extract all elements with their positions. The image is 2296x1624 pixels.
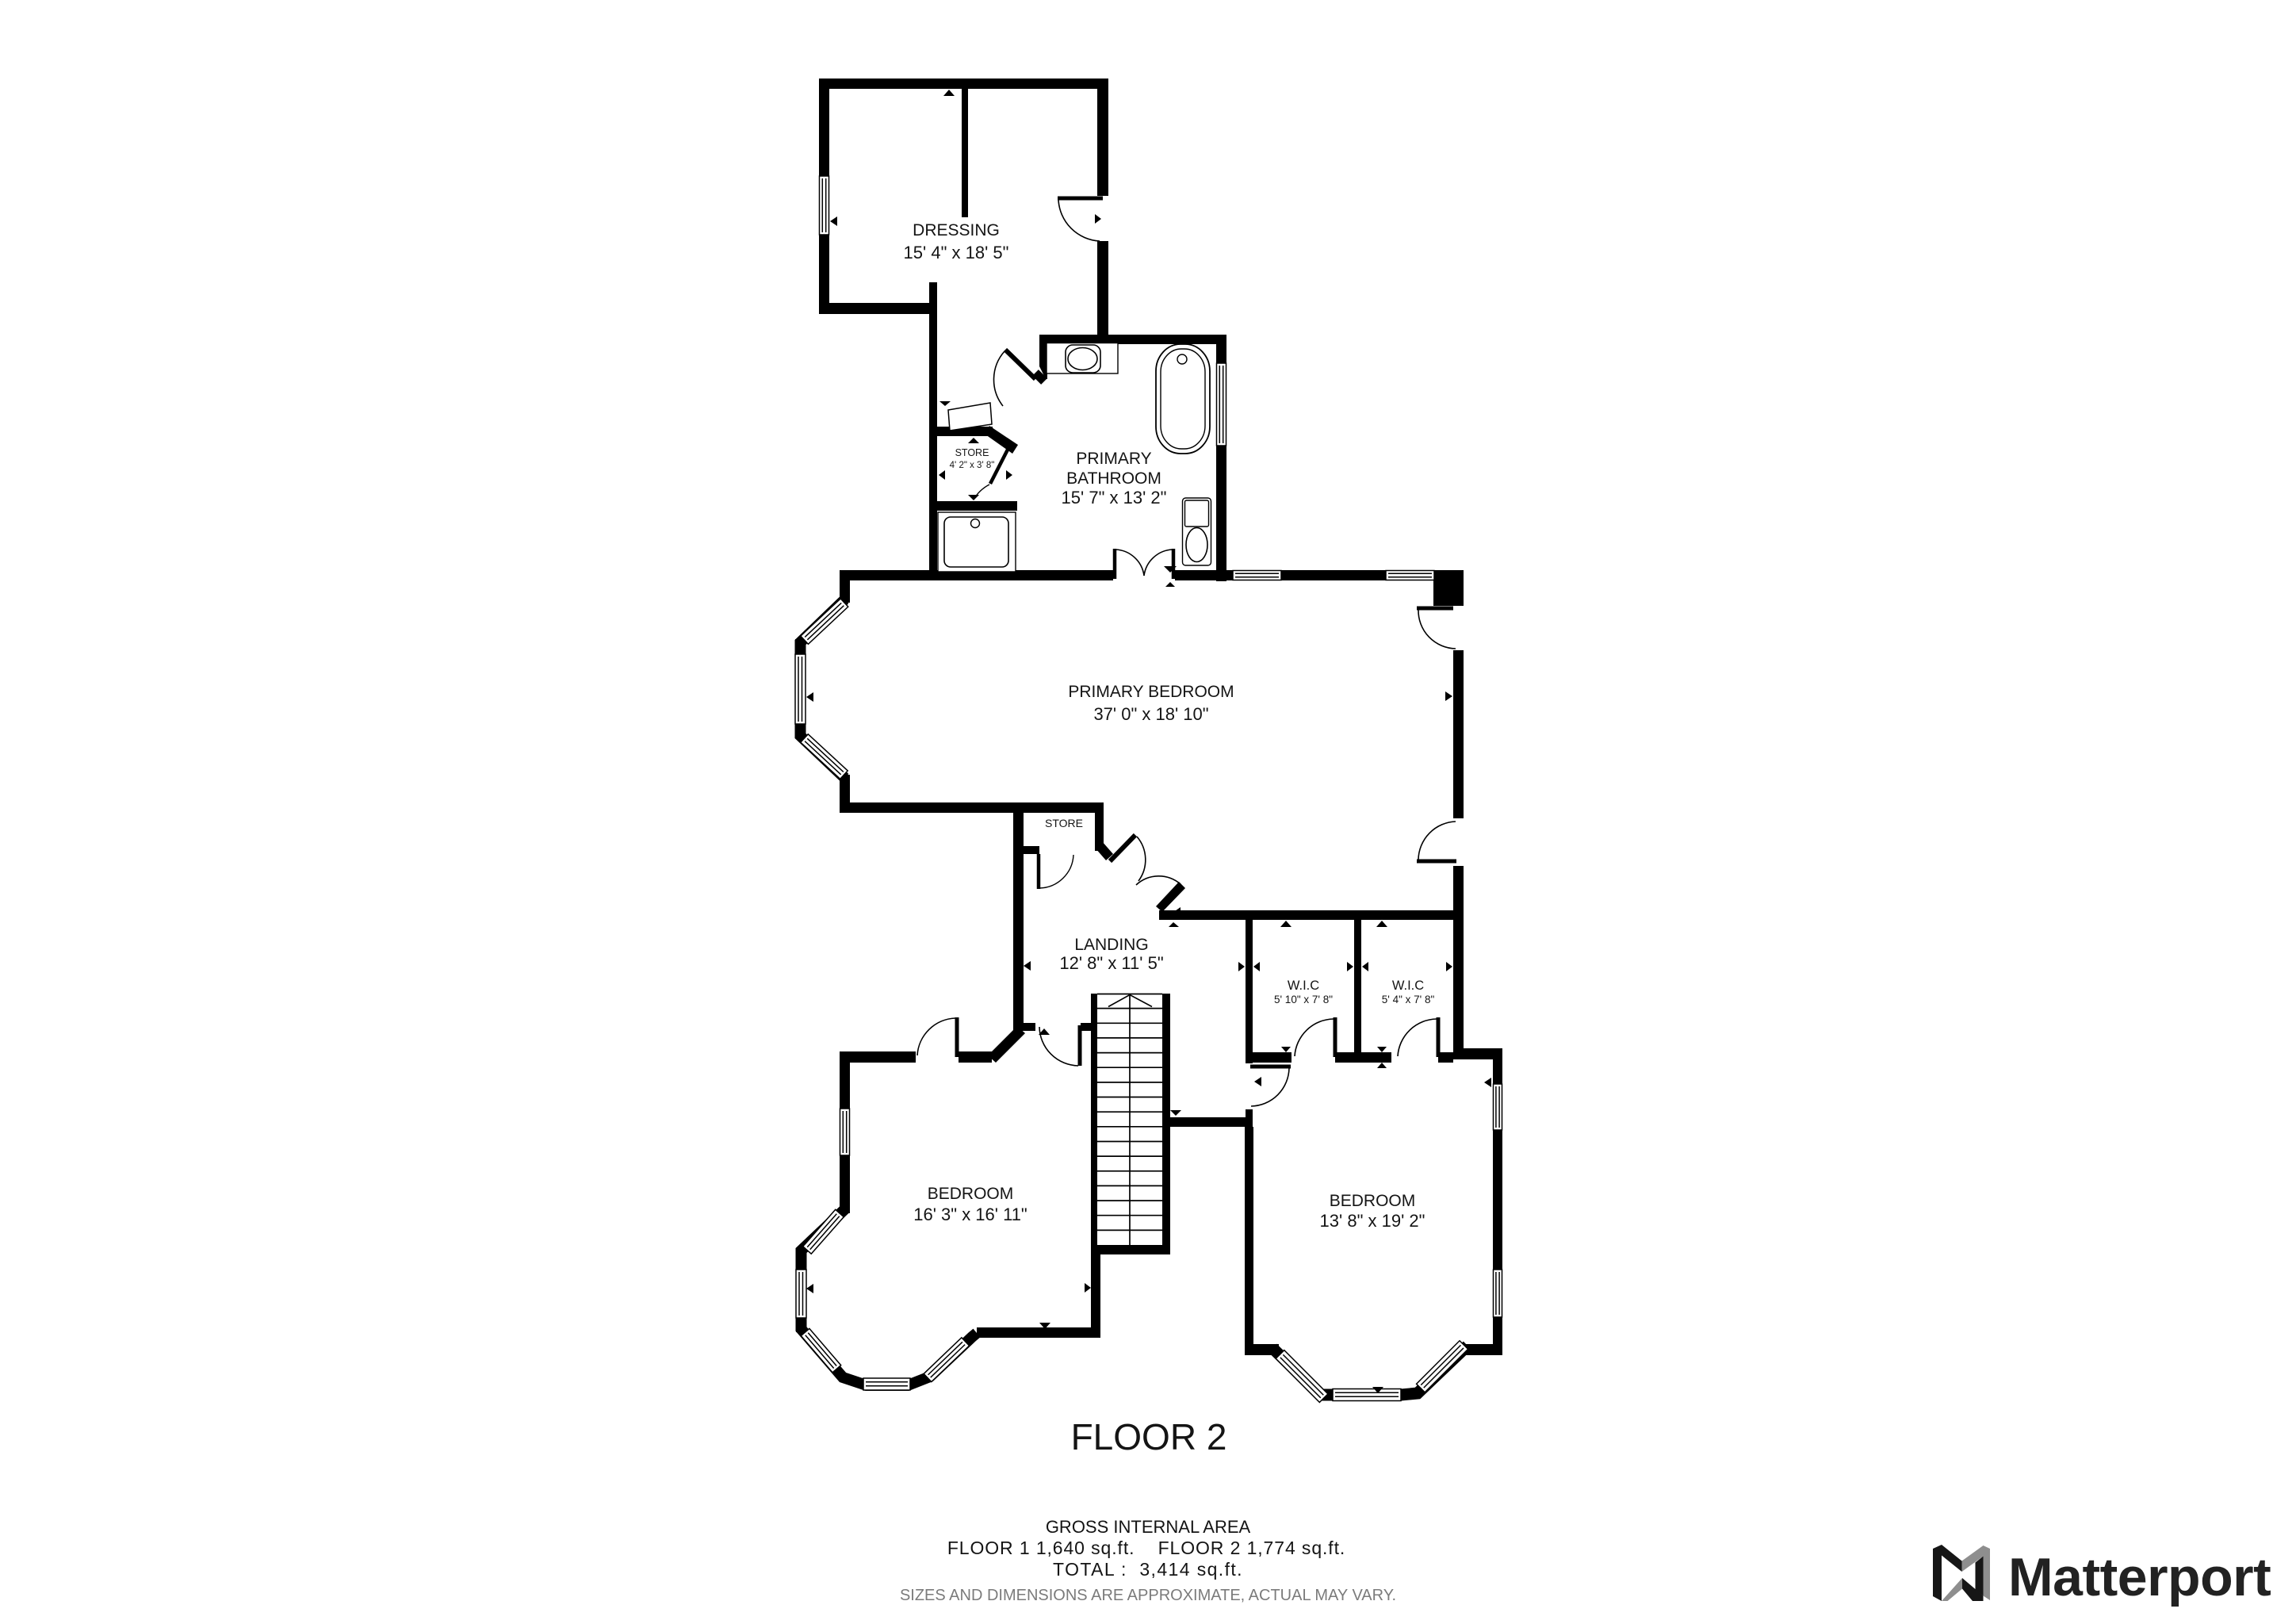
svg-text:5' 10" x 7' 8": 5' 10" x 7' 8" — [1274, 994, 1333, 1005]
svg-text:BEDROOM: BEDROOM — [928, 1185, 1014, 1203]
svg-text:4' 2" x 3' 8": 4' 2" x 3' 8" — [950, 461, 995, 470]
svg-text:5' 4" x 7' 8": 5' 4" x 7' 8" — [1382, 994, 1435, 1005]
svg-text:GROSS INTERNAL AREA: GROSS INTERNAL AREA — [1046, 1517, 1251, 1537]
svg-text:STORE: STORE — [955, 447, 989, 458]
svg-text:Matterport: Matterport — [2008, 1547, 2271, 1607]
svg-text:15' 4" x 18' 5": 15' 4" x 18' 5" — [904, 243, 1009, 262]
svg-text:15' 7" x 13' 2": 15' 7" x 13' 2" — [1062, 488, 1167, 507]
svg-text:DRESSING: DRESSING — [913, 221, 1000, 239]
svg-text:LANDING: LANDING — [1074, 936, 1148, 954]
svg-text:STORE: STORE — [1045, 817, 1083, 829]
svg-text:13' 8" x 19' 2": 13' 8" x 19' 2" — [1320, 1211, 1425, 1231]
svg-text:16' 3" x 16' 11": 16' 3" x 16' 11" — [913, 1205, 1027, 1224]
svg-text:W.I.C: W.I.C — [1392, 979, 1424, 993]
svg-text:BATHROOM: BATHROOM — [1066, 469, 1161, 488]
svg-text:PRIMARY BEDROOM: PRIMARY BEDROOM — [1068, 683, 1234, 701]
svg-text:W.I.C: W.I.C — [1288, 979, 1319, 993]
svg-text:PRIMARY: PRIMARY — [1076, 450, 1151, 468]
svg-text:12' 8" x 11' 5": 12' 8" x 11' 5" — [1059, 953, 1163, 973]
svg-text:SIZES AND DIMENSIONS ARE APPRO: SIZES AND DIMENSIONS ARE APPROXIMATE, AC… — [900, 1587, 1396, 1604]
svg-text:FLOOR 2: FLOOR 2 — [1071, 1416, 1227, 1457]
svg-text:37' 0" x 18' 10": 37' 0" x 18' 10" — [1093, 704, 1208, 724]
svg-text:TOTAL : 3,414 sq.ft.: TOTAL : 3,414 sq.ft. — [1053, 1559, 1243, 1580]
svg-text:FLOOR 1 1,640 sq.ft. FLOOR: FLOOR 1 1,640 sq.ft. FLOOR 2 1,774 sq.ft… — [947, 1538, 1345, 1558]
svg-text:BEDROOM: BEDROOM — [1330, 1192, 1416, 1210]
